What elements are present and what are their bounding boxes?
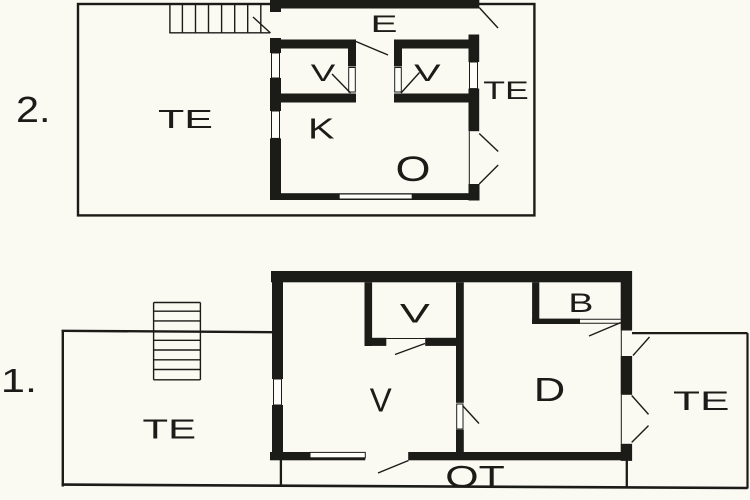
svg-text:V: V	[370, 382, 393, 419]
svg-text:V: V	[400, 298, 430, 328]
svg-text:K: K	[308, 114, 335, 146]
svg-text:OT: OT	[445, 460, 505, 494]
svg-text:O: O	[396, 149, 431, 189]
svg-text:D: D	[534, 372, 566, 409]
svg-text:V: V	[311, 60, 336, 87]
svg-text:B: B	[568, 288, 593, 318]
svg-text:E: E	[371, 11, 398, 38]
svg-text:TE: TE	[673, 386, 730, 416]
svg-text:TE: TE	[483, 77, 529, 105]
svg-text:2.: 2.	[16, 89, 51, 130]
svg-text:V: V	[414, 60, 442, 87]
svg-text:1.: 1.	[1, 362, 37, 399]
svg-text:TE: TE	[143, 414, 197, 445]
svg-text:TE: TE	[158, 104, 213, 134]
